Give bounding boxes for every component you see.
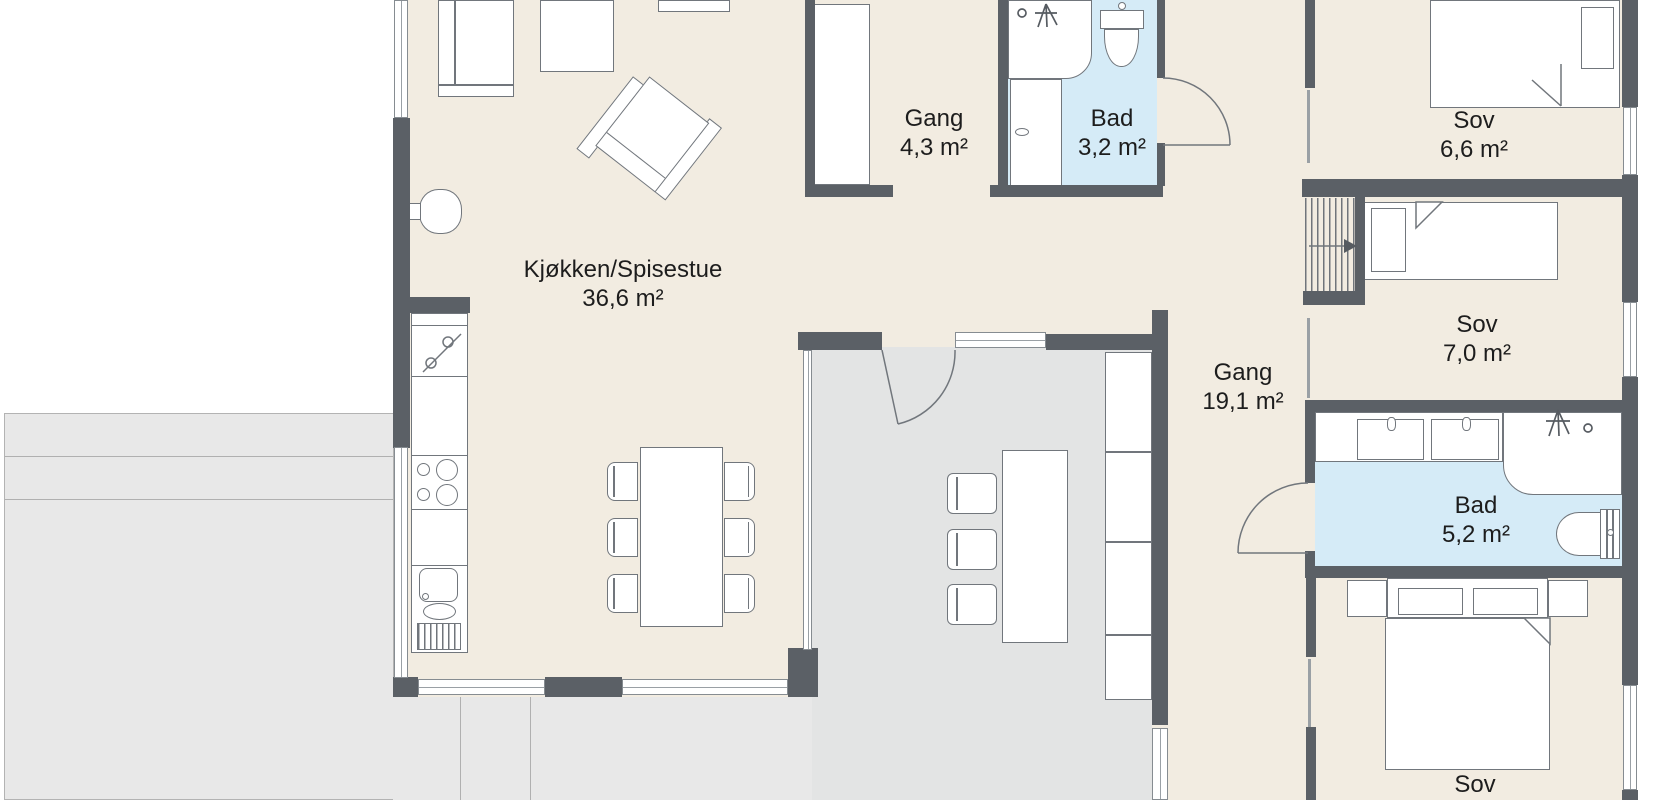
door-handle <box>1015 128 1029 136</box>
room-area: 3,2 m² <box>1078 133 1146 162</box>
door-opening <box>1308 659 1311 727</box>
grey-room-floor <box>812 347 1152 800</box>
wall <box>1305 412 1315 483</box>
hall-wardrobe <box>813 4 870 185</box>
room-name: Bad <box>1442 491 1510 520</box>
faucet <box>1462 417 1471 431</box>
wall <box>1306 578 1316 657</box>
round-table <box>419 189 462 234</box>
bed-double <box>1385 618 1550 770</box>
drainboard <box>417 623 461 650</box>
room-name: Sov <box>1443 310 1511 339</box>
door-opening <box>1307 318 1310 398</box>
dining-chair <box>724 518 755 557</box>
window <box>955 332 1046 348</box>
terrace <box>4 413 394 800</box>
pillow <box>1581 7 1614 69</box>
wall <box>1157 0 1165 78</box>
wall <box>1622 0 1638 107</box>
pillow <box>1473 588 1538 615</box>
side-table <box>540 0 614 72</box>
terrace-lower <box>393 697 812 800</box>
wall <box>393 677 418 697</box>
wall <box>1622 377 1638 685</box>
wall <box>393 118 410 448</box>
toilet-bowl <box>1556 512 1602 556</box>
wall <box>410 297 470 313</box>
bar-stool <box>947 584 997 625</box>
wall <box>1305 0 1315 88</box>
wall <box>1046 334 1168 350</box>
dining-chair <box>724 574 755 613</box>
room-label-bath-main: Bad 5,2 m² <box>1442 491 1510 549</box>
terrace-step-line <box>5 456 393 457</box>
window <box>394 447 408 678</box>
wall <box>1305 566 1638 578</box>
dining-chair <box>607 574 638 613</box>
pillow <box>1398 588 1463 615</box>
window <box>1152 728 1168 800</box>
room-area: 36,6 m² <box>524 284 723 313</box>
wall <box>1302 179 1638 197</box>
bar-stool <box>947 529 997 570</box>
wall <box>805 185 893 197</box>
pillow <box>1371 208 1406 272</box>
shower-tray <box>1503 412 1622 495</box>
wall <box>1152 310 1168 725</box>
nightstand <box>1548 580 1588 617</box>
door-opening <box>1307 90 1310 163</box>
room-name: Gang <box>1202 358 1283 387</box>
dining-table <box>640 447 723 627</box>
room-name: Sov <box>1454 770 1495 799</box>
dining-chair <box>607 462 638 501</box>
room-name: Gang <box>900 104 968 133</box>
kitchen-sink <box>411 565 468 653</box>
bar-stool <box>947 473 997 514</box>
wall <box>990 185 1163 197</box>
room-name: Sov <box>1440 106 1508 135</box>
shower-door <box>1010 79 1062 187</box>
toilet-flush-dot <box>1118 2 1126 10</box>
room-area: 19,1 m² <box>1202 387 1283 416</box>
wall <box>788 648 818 697</box>
faucet <box>1387 417 1396 431</box>
wall <box>1355 197 1365 305</box>
dining-chair <box>607 518 638 557</box>
room-label-kitchen: Kjøkken/Spisestue 36,6 m² <box>524 255 723 313</box>
room-area: 6,6 m² <box>1440 135 1508 164</box>
wall <box>1303 291 1360 305</box>
room-area: 7,0 m² <box>1443 339 1511 368</box>
room-label-bedroom-3: Sov <box>1454 770 1495 799</box>
room-label-bedroom-2: Sov 7,0 m² <box>1443 310 1511 368</box>
sofa <box>438 0 514 97</box>
wall <box>798 332 882 350</box>
wall <box>1157 143 1165 186</box>
floor-plan: Kjøkken/Spisestue 36,6 m² Gang 4,3 m² Ba… <box>0 0 1670 800</box>
toilet-tank <box>1100 10 1144 29</box>
room-name: Bad <box>1078 104 1146 133</box>
room-label-hall-entry: Gang 4,3 m² <box>900 104 968 162</box>
cooktop <box>411 455 468 510</box>
terrace-plank-line <box>460 697 461 800</box>
window <box>1623 107 1637 175</box>
window <box>1623 685 1637 790</box>
room-label-hall-main: Gang 19,1 m² <box>1202 358 1283 416</box>
room-label-bath-small: Bad 3,2 m² <box>1078 104 1146 162</box>
wardrobe-column <box>1105 352 1152 700</box>
wall <box>998 0 1008 186</box>
wall-shelf <box>658 0 730 12</box>
glass-partition <box>803 350 812 650</box>
room-label-bedroom-1: Sov 6,6 m² <box>1440 106 1508 164</box>
room-name: Kjøkken/Spisestue <box>524 255 723 284</box>
wall <box>1305 400 1638 412</box>
terrace-step-line <box>5 499 393 500</box>
dining-chair <box>724 462 755 501</box>
staircase <box>1305 198 1356 291</box>
room-area: 4,3 m² <box>900 133 968 162</box>
window <box>394 0 408 118</box>
wall <box>545 677 622 697</box>
bar-island <box>1002 450 1068 643</box>
room-area: 5,2 m² <box>1442 520 1510 549</box>
round-table-bracket <box>409 203 421 220</box>
wall <box>805 0 815 186</box>
window <box>1623 302 1637 377</box>
toilet-flush-dot <box>1607 529 1614 536</box>
window <box>622 679 788 695</box>
wall <box>1306 727 1316 800</box>
nightstand <box>1347 580 1387 617</box>
dishwasher <box>411 325 468 377</box>
terrace-plank-line <box>530 697 531 800</box>
wall <box>1622 175 1638 302</box>
wall <box>1622 790 1638 800</box>
window <box>418 679 545 695</box>
shower-tray <box>1008 0 1092 79</box>
